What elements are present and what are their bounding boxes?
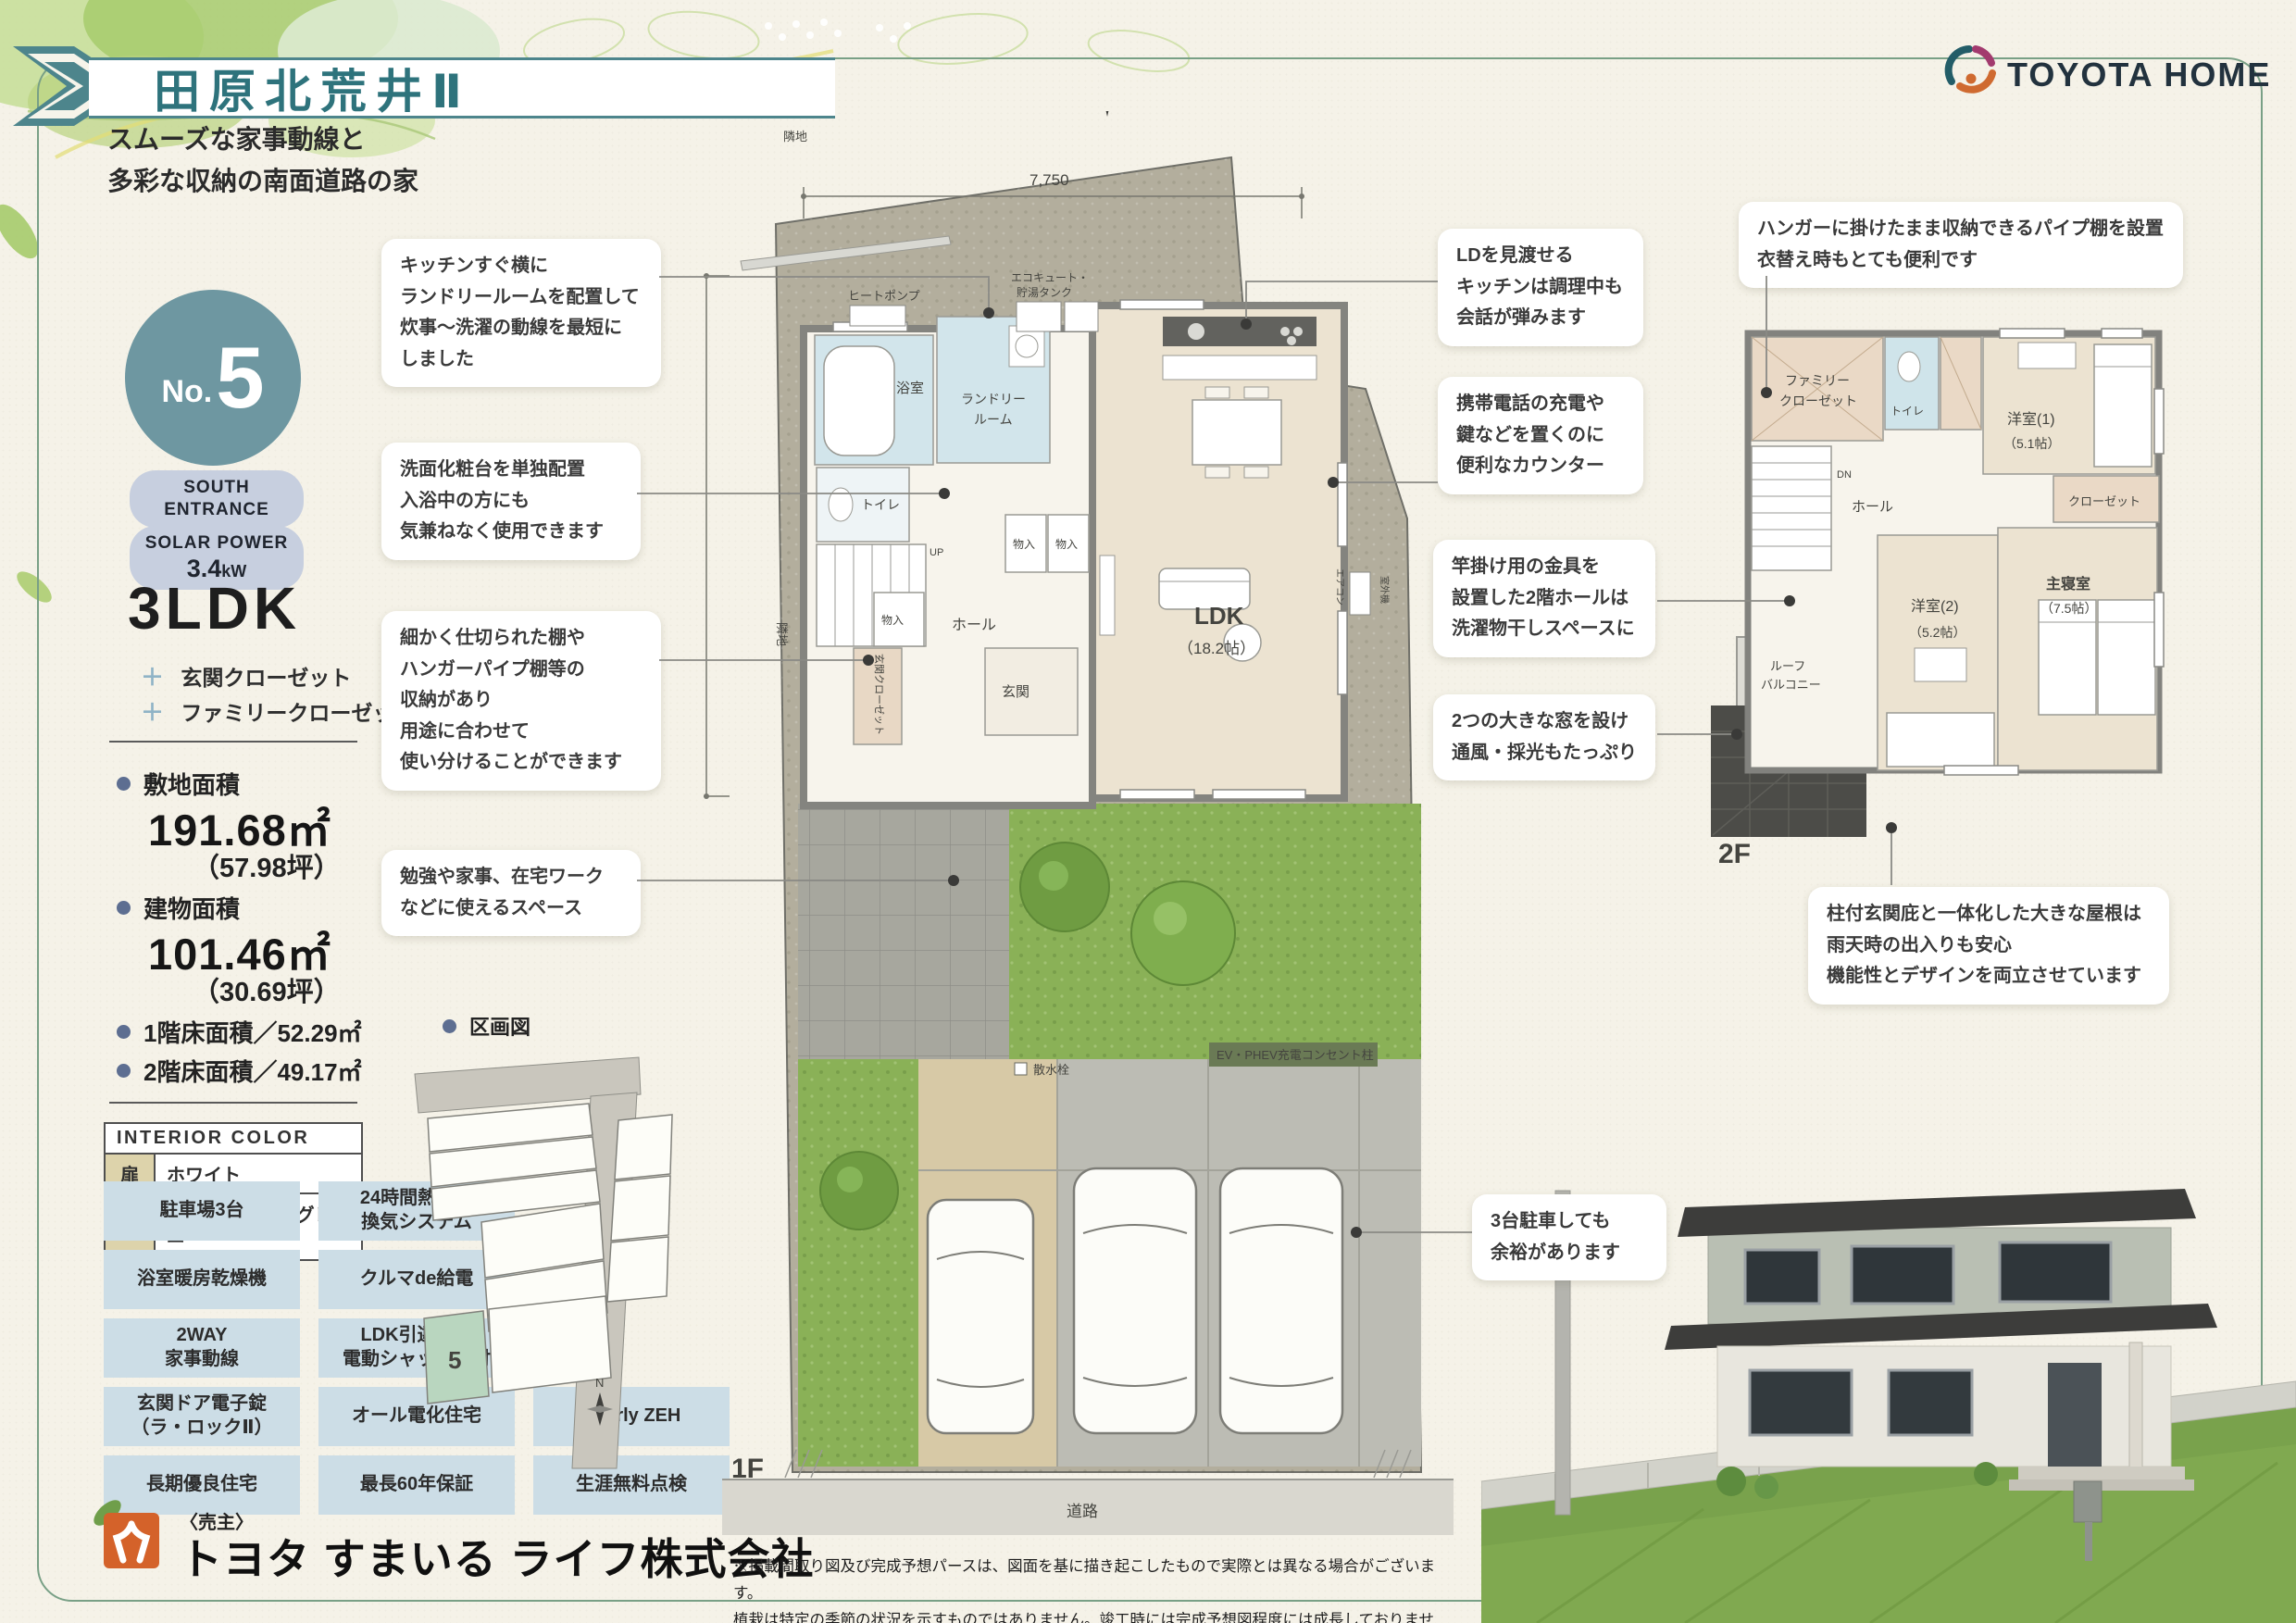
site-area-tsubo: （57.98坪） <box>193 846 341 885</box>
room-label: 玄関 <box>1002 684 1029 700</box>
page-title: 田原北荒井Ⅱ <box>154 55 471 121</box>
bed <box>1887 713 1994 767</box>
equip-label: 室外機 <box>1379 576 1391 604</box>
feature-tag: 浴室暖房乾燥機 <box>104 1250 300 1309</box>
interior-color-header: INTERIOR COLOR <box>106 1124 361 1155</box>
room-label: 洋室(1) <box>2007 411 2055 428</box>
bullet-icon <box>117 901 131 915</box>
room-label: 物入 <box>1013 538 1035 551</box>
equip-label: 貯湯タンク <box>1017 286 1072 299</box>
stairs-dn-label: DN <box>1837 469 1852 481</box>
building-area-tsubo: （30.69坪） <box>193 970 341 1009</box>
bullet-icon <box>117 1064 131 1078</box>
callout-roof: 柱付玄関庇と一体化した大きな屋根は雨天時の出入りも安心機能性とデザインを両立させ… <box>1808 887 2169 1005</box>
room-label: ルーム <box>974 412 1013 427</box>
room-label: クローゼット <box>2068 494 2140 508</box>
unit-number-prefix: No. <box>161 374 212 410</box>
callout-counter: 携帯電話の充電や鍵などを置くのに便利なカウンター <box>1438 377 1643 494</box>
equip-label: エコキュート・ <box>1011 271 1089 284</box>
room-label: 玄関クローゼット <box>873 654 886 735</box>
bed <box>2039 600 2096 715</box>
bed <box>2094 344 2152 467</box>
callout-parking: 3台駐車しても余裕があります <box>1472 1194 1666 1280</box>
title-banner: 田原北荒井Ⅱ <box>89 57 835 119</box>
lot-number: 5 <box>448 1346 461 1374</box>
bed <box>2098 600 2155 715</box>
room-entrance <box>985 648 1078 735</box>
exterior-render <box>1481 1111 2296 1623</box>
feature-tag: 2WAY 家事動線 <box>104 1318 300 1378</box>
dim-width: 7,750 <box>1029 171 1069 189</box>
callout-kitchen-laundry: キッチンすぐ横にランドリールームを配置して 炊事～洗濯の動線を最短にしました <box>381 239 661 387</box>
kitchen-island <box>1163 356 1316 380</box>
company-logo-icon <box>93 1498 172 1578</box>
room-label: クローゼット <box>1779 393 1857 408</box>
equip-label: ヒートポンプ <box>848 289 920 303</box>
room-label: 物入 <box>1055 538 1078 551</box>
subtitle-line2: 多彩な収納の南面道路の家 <box>107 160 418 202</box>
callout-workspace: 勉強や家事、在宅ワークなどに使えるスペース <box>381 850 641 936</box>
floor-plan-2f: ファミリー クローゼット トイレ 洋室(1) （5.1帖） クローゼット ホール… <box>1703 315 2270 870</box>
mailbox <box>2074 1481 2102 1522</box>
room-label: ホール <box>1852 499 1893 515</box>
car-icon <box>928 1168 1342 1433</box>
room-label-ldk: LDK <box>1194 602 1244 630</box>
feature-tag: 駐車場3台 <box>104 1181 300 1241</box>
room-label: 洋室(2) <box>1911 598 1959 615</box>
callout-pipe-shelf: ハンガーに掛けたまま収納できるパイプ棚を設置衣替え時もとても便利です <box>1739 202 2183 288</box>
plus-icon: ＋ <box>141 700 164 726</box>
room-label: ファミリー <box>1785 373 1850 388</box>
lot-map: 5 N <box>398 1046 676 1472</box>
room-label: （7.5帖） <box>2040 601 2097 616</box>
callout-hall2f: 竿掛け用の金具を設置した2階ホールは洗濯物干しスペースに <box>1433 540 1655 657</box>
house-illustration <box>1665 1189 2217 1499</box>
floor-plan-1f: 道路 浴室 ランドリー ルーム トイレ UP 物入 物入 物入 ホール <box>704 111 1463 1555</box>
plus-icon: ＋ <box>141 665 164 691</box>
dining-table <box>1192 400 1281 465</box>
plan-type: 3LDK <box>128 574 301 643</box>
room-label-ldk-size: （18.2帖） <box>1178 640 1255 657</box>
room-label: （5.2帖） <box>1909 625 1965 640</box>
floor2-area: 2階床面積／49.17㎡ <box>117 1054 362 1088</box>
stairs-2f <box>1752 446 1831 570</box>
room-label: バルコニー <box>1761 678 1821 692</box>
divider <box>109 741 357 743</box>
svg-text:N: N <box>595 1376 604 1390</box>
bullet-icon <box>117 777 131 791</box>
floor-label-2f: 2F <box>1718 839 1751 869</box>
equip-label: エアコン <box>1334 568 1344 606</box>
feature-tag: 玄関ドア電子錠 （ラ・ロックⅡ） <box>104 1387 300 1446</box>
flyer-page: 田原北荒井Ⅱ スムーズな家事動線と 多彩な収納の南面道路の家 TOYOTA HO… <box>0 0 2296 1623</box>
lot-map-title: 区画図 <box>443 1011 530 1041</box>
bullet-icon <box>443 1019 456 1033</box>
room-label: ホール <box>952 618 996 633</box>
unit-number: 5 <box>216 328 264 428</box>
unit-number-badge: No. 5 <box>125 290 301 466</box>
extra-closet-2: ＋ ファミリークローゼット <box>141 694 415 728</box>
room-label: （5.1帖） <box>2003 436 2060 451</box>
room-label: トイレ <box>861 497 900 512</box>
bullet-icon <box>117 1025 131 1039</box>
room-label: 浴室 <box>896 381 924 396</box>
room-label: 物入 <box>881 614 904 627</box>
floor-label-1f: 1F <box>731 1454 764 1484</box>
tv-board <box>1100 556 1115 635</box>
callout-vanity: 洗面化粧台を単独配置入浴中の方にも気兼ねなく使用できます <box>381 443 641 560</box>
disclaimer: ※掲載間取り図及び完成予想パースは、図面を基に描き起こしたもので実際とは異なる場… <box>733 1554 1455 1623</box>
callout-shelf: 細かく仕切られた棚やハンガーパイプ棚等の 収納があり用途に合わせて 使い分けるこ… <box>381 611 661 791</box>
room-label: 主寝室 <box>2046 575 2090 593</box>
callout-windows: 2つの大きな窓を設け通風・採光もたっぷり <box>1433 694 1655 780</box>
neighbor-label: 隣地 <box>775 622 789 646</box>
callout-ld-kitchen: LDを見渡せるキッチンは調理中も会話が弾みます <box>1438 229 1643 346</box>
extra-closet-1: ＋ 玄関クローゼット <box>141 659 351 693</box>
road-label: 道路 <box>1067 1503 1098 1520</box>
company-name: トヨタ すまいる ライフ株式会社 <box>180 1526 815 1587</box>
subtitle-line1: スムーズな家事動線と <box>107 119 418 160</box>
desk <box>1915 648 1966 681</box>
divider <box>109 1102 357 1104</box>
sprinkler-label: 散水栓 <box>1033 1063 1069 1077</box>
subtitle: スムーズな家事動線と 多彩な収納の南面道路の家 <box>107 119 418 203</box>
badge-south-entrance: SOUTH ENTRANCE <box>130 470 304 528</box>
compass-icon: N <box>1089 111 1126 117</box>
room-label: トイレ <box>1890 405 1924 418</box>
neighbor-label: 隣地 <box>783 130 807 144</box>
room-label: ルーフ <box>1770 659 1805 673</box>
toyota-home-logo-icon <box>1940 39 2002 100</box>
brand-name: TOYOTA HOME <box>2007 56 2271 94</box>
floor1-area: 1階床面積／52.29㎡ <box>117 1015 362 1049</box>
room-label: ランドリー <box>961 392 1026 406</box>
ev-outlet-label: EV・PHEV充電コンセント柱 <box>1217 1048 1374 1062</box>
stairs-up-label: UP <box>930 547 943 558</box>
desk <box>2018 343 2076 368</box>
